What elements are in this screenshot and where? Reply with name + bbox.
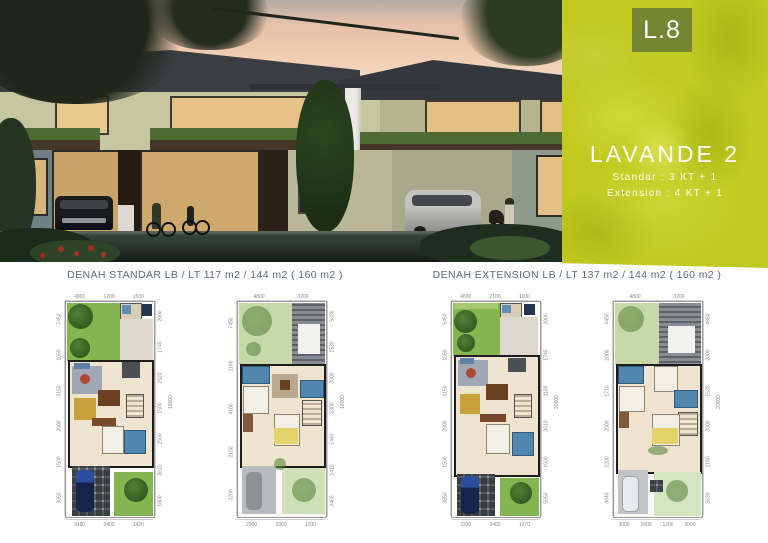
stairs (126, 394, 144, 418)
dim-label: 4800 (253, 294, 264, 300)
dim-label: 2000 (544, 313, 550, 324)
dim-label: 3200 (297, 294, 308, 300)
floorplan-extension-upper: 48003200 445020001710200022003640 465020… (591, 291, 723, 541)
wardrobe (243, 414, 253, 432)
dim-label: 2000 (443, 421, 449, 432)
dim-label: 3610 (158, 464, 164, 475)
foreground-foliage (470, 236, 550, 260)
shrub (274, 458, 286, 470)
dim-label: 2630 (706, 492, 712, 503)
dim-col-right: 5030153020001300144014103460 (327, 301, 337, 516)
dim-label: 1440 (330, 434, 336, 445)
shrub-row (648, 446, 668, 455)
dim-total: 20000 (554, 395, 560, 409)
floorplan-standard-ground: 480017001500 745010503150200015003050 20… (43, 291, 175, 541)
bathroom (618, 366, 644, 384)
car-below (246, 472, 262, 510)
dim-label: 2900 (246, 522, 257, 528)
block-code-text: L.8 (643, 16, 681, 45)
dim-label: 1530 (330, 341, 336, 352)
dim-label: 3150 (57, 385, 63, 396)
dining-table (486, 384, 508, 400)
red-flower (88, 245, 94, 251)
dim-label: 4150 (443, 385, 449, 396)
dim-label: 3900 (275, 522, 286, 528)
tree (454, 310, 477, 333)
car-below (622, 476, 639, 512)
lot-outline (65, 301, 155, 518)
white-post-box (118, 205, 134, 232)
block-code-badge: L.8 (632, 8, 692, 52)
dim-label: 2000 (158, 311, 164, 322)
dim-label: 3610 (544, 421, 550, 432)
tree (124, 478, 148, 502)
red-flower (101, 252, 106, 257)
ground-window-lit (536, 155, 562, 217)
dim-label: 2150 (229, 446, 235, 457)
skylight (298, 324, 320, 354)
dim-label: 3640 (605, 492, 611, 503)
dim-label: 1300 (330, 403, 336, 414)
dim-label: 1745 (158, 341, 164, 352)
bathroom-dark (122, 362, 140, 378)
red-flower (40, 253, 45, 258)
dim-label: 4650 (706, 313, 712, 324)
dim-label: 1100 (229, 360, 235, 371)
hero-photo (0, 0, 562, 262)
red-flower (74, 251, 79, 256)
dim-total: 18000 (168, 395, 174, 409)
dim-label: 4800 (460, 294, 471, 300)
sofa (460, 358, 474, 364)
dim-label: 2000 (330, 372, 336, 383)
dim-row-bottom: 290039001200 (237, 519, 325, 528)
dim-label: 3050 (57, 492, 63, 503)
tall-tree (296, 80, 354, 232)
dim-label: 1800 (640, 522, 651, 528)
info-panel: L.8 LAVANDE 2 Standar : 3 KT + 1 Extensi… (562, 0, 768, 268)
lot-outline (613, 301, 703, 518)
dim-label: 1050 (443, 349, 449, 360)
dim-label: 1500 (158, 403, 164, 414)
bathroom (242, 366, 270, 384)
bed (486, 424, 510, 454)
dim-label: 3200 (229, 489, 235, 500)
entry-door-dark (258, 150, 288, 234)
bed (654, 366, 678, 392)
dim-label: 1050 (57, 349, 63, 360)
floorplan-extension-ground: 480021001100 545010504150200015003850 20… (429, 291, 561, 541)
dim-label: 1500 (544, 457, 550, 468)
dim-col-right: 2000174525201500250036101800 (155, 301, 165, 516)
bicycle-wheel (146, 222, 161, 237)
caption-standard: DENAH STANDAR LB / LT 117 m2 / 144 m2 ( … (60, 269, 350, 281)
dim-label: 1500 (443, 457, 449, 468)
dim-label: 3000 (618, 522, 629, 528)
tree (618, 306, 644, 332)
dim-label: 1745 (544, 349, 550, 360)
sedan-windshield (60, 200, 108, 209)
spec-extension: Extension : 4 KT + 1 (562, 188, 768, 199)
dim-label: 3200 (673, 294, 684, 300)
dim-label: 1530 (706, 385, 712, 396)
tree (68, 304, 93, 329)
bicycle-wheel (161, 222, 176, 237)
dim-label: 2000 (605, 421, 611, 432)
rug-accent (80, 374, 90, 384)
caption-extension: DENAH EXTENSION LB / LT 137 m2 / 144 m2 … (432, 269, 722, 281)
red-flower (58, 246, 64, 252)
dim-label: 1100 (544, 385, 550, 396)
skylight (668, 326, 695, 353)
tree (510, 482, 532, 504)
dim-col-right: 200017451100361015005050 (541, 301, 551, 516)
dim-label: 1800 (158, 495, 164, 506)
dim-label: 2520 (158, 372, 164, 383)
tree (70, 338, 90, 358)
dim-label: 2100 (490, 294, 501, 300)
dim-label: 3460 (330, 495, 336, 506)
dim-label: 1100 (519, 294, 530, 300)
wardrobe (619, 412, 629, 428)
hedge (454, 303, 498, 309)
patio-floor (120, 319, 153, 361)
dim-label: 4800 (629, 294, 640, 300)
rug-accent (466, 368, 476, 378)
dim-row-bottom: 333034001270 (451, 519, 539, 528)
bathroom (300, 380, 324, 398)
patio-floor (500, 317, 538, 355)
dim-label: 1500 (57, 457, 63, 468)
dim-label: 1710 (605, 385, 611, 396)
dim-label: 1420 (133, 522, 144, 528)
dining-table (98, 390, 120, 406)
dim-label: 4450 (605, 313, 611, 324)
bathroom (674, 390, 698, 408)
tree (666, 480, 688, 502)
dim-label: 1200 (662, 522, 673, 528)
dim-label: 5030 (330, 311, 336, 322)
tree (292, 478, 316, 502)
dim-row-bottom: 318034001420 (65, 519, 153, 528)
sink (502, 305, 511, 313)
patterned-rug (74, 398, 96, 420)
sofa (74, 363, 90, 369)
bicycle-wheel (195, 220, 210, 235)
lot-outline (237, 301, 327, 518)
dim-label: 1410 (330, 464, 336, 475)
dim-label: 3400 (103, 522, 114, 528)
kitchen-counter (480, 414, 506, 422)
dim-label: 5050 (544, 492, 550, 503)
dim-label: 2200 (605, 457, 611, 468)
paver-patch (650, 480, 663, 492)
dim-label: 7450 (229, 317, 235, 328)
floorplan-standard-upper: 48003200 74501100410021503200 5030153020… (215, 291, 347, 541)
dim-label: 2000 (706, 421, 712, 432)
dim-row-top: 480017001500 (65, 292, 153, 301)
bed (102, 426, 124, 454)
sink (122, 305, 131, 314)
table (280, 380, 290, 390)
dim-label: 3850 (443, 492, 449, 503)
minivan-windows (412, 195, 472, 206)
cluster-title: LAVANDE 2 (562, 141, 768, 168)
dim-label: 3400 (489, 522, 500, 528)
dim-label: 2500 (158, 434, 164, 445)
stairs (514, 394, 532, 418)
patterned-rug (460, 394, 480, 414)
bed (243, 386, 269, 414)
bed-blanket (652, 428, 678, 444)
dim-total: 18000 (340, 395, 346, 409)
bathroom-dark (508, 358, 526, 372)
dim-label: 2000 (684, 522, 695, 528)
dim-label: 1270 (519, 522, 530, 528)
car (76, 470, 94, 512)
car (461, 476, 479, 514)
dim-label: 7450 (57, 313, 63, 324)
kitchen-counter (92, 418, 116, 426)
dim-label: 4800 (74, 294, 85, 300)
brochure-page: L.8 LAVANDE 2 Standar : 3 KT + 1 Extensi… (0, 0, 768, 543)
dim-total: 20000 (716, 395, 722, 409)
dim-label: 5450 (443, 313, 449, 324)
dim-row-bottom: 3000180012002000 (613, 519, 701, 528)
water-tank (142, 304, 152, 316)
dim-label: 4100 (229, 403, 235, 414)
dim-label: 1200 (305, 522, 316, 528)
dim-label: 1500 (133, 294, 144, 300)
dim-label: 2000 (706, 349, 712, 360)
dim-row-top: 48003200 (237, 292, 325, 301)
dim-label: 3330 (460, 522, 471, 528)
dim-label: 2000 (605, 349, 611, 360)
stairs (302, 400, 322, 426)
dim-col-right: 465020001530200021902630 (703, 301, 713, 516)
spec-standard: Standar : 3 KT + 1 (562, 172, 768, 183)
lot-outline (451, 301, 541, 518)
dim-col-left: 74501100410021503200 (227, 301, 237, 516)
dim-col-left: 745010503150200015003050 (55, 301, 65, 516)
dim-label: 2190 (706, 457, 712, 468)
dim-row-top: 48003200 (613, 292, 701, 301)
stairs (678, 412, 698, 436)
bed-blanket (274, 428, 298, 444)
tree (242, 306, 272, 336)
tree (457, 334, 475, 352)
bathroom (124, 430, 146, 454)
dim-label: 1700 (103, 294, 114, 300)
water-tank (524, 304, 535, 315)
bathroom (512, 432, 534, 456)
dim-label: 2000 (57, 421, 63, 432)
bed (619, 386, 645, 412)
dim-label: 3180 (74, 522, 85, 528)
sedan-grille (62, 218, 106, 223)
dim-col-left: 545010504150200015003850 (441, 301, 451, 516)
dim-col-left: 445020001710200022003640 (603, 301, 613, 516)
shrub (246, 342, 261, 356)
dim-row-top: 480021001100 (451, 292, 539, 301)
